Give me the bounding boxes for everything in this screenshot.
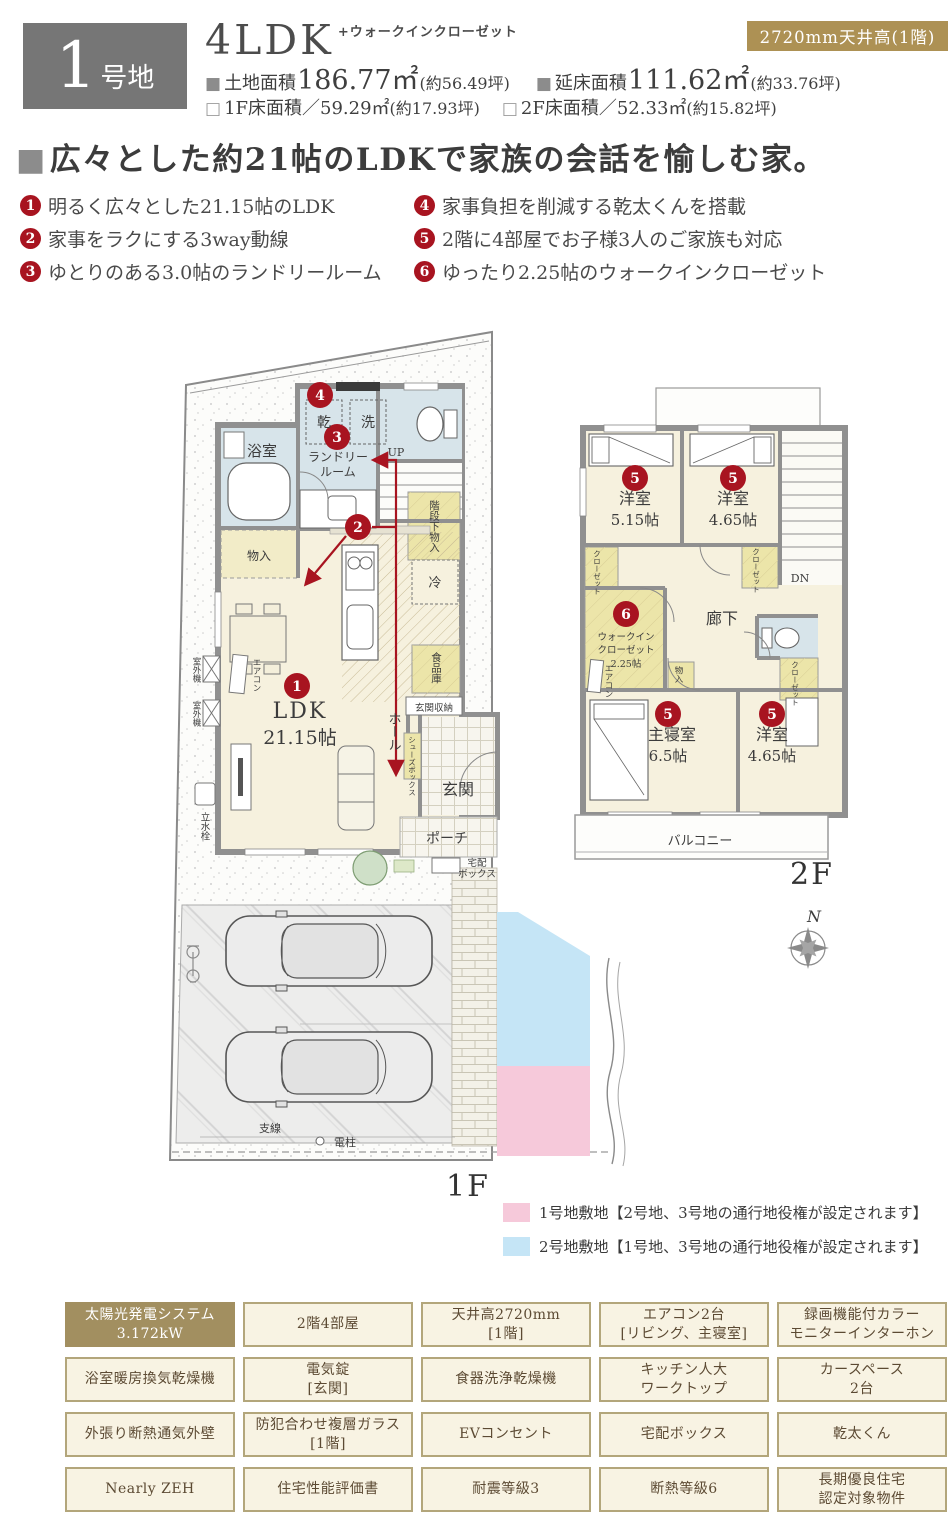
f1-area-value: 59.29㎡	[320, 94, 390, 120]
room2-size: 4.65帖	[709, 511, 757, 529]
entry-storage-label: 玄関収納	[415, 702, 453, 714]
laundry-label-2: ルーム	[320, 465, 356, 479]
svg-text:5: 5	[630, 471, 640, 487]
total-area-label: 延床面積	[555, 69, 627, 95]
spec-cell-carspace: カースペース2台	[777, 1357, 947, 1402]
feature-item-3: 3 ゆとりのある3.0帖のランドリールーム	[20, 255, 414, 288]
headline-square-marker: ■	[16, 142, 47, 178]
easement-areas	[497, 912, 625, 1166]
master-label: 主寝室	[648, 725, 696, 744]
legend-item-blue: 2号地敷地【1号地、3号地の通行地役権が設定されます】	[503, 1236, 928, 1256]
feature-text: ゆとりのある3.0帖のランドリールーム	[48, 258, 382, 285]
storage-label: 物入	[247, 549, 271, 563]
feature-item-5: 5 2階に4部屋でお子様3人のご家族も対応	[414, 222, 826, 255]
open-square-marker: □	[205, 99, 221, 119]
feature-number-badge: 5	[414, 228, 435, 249]
flyer-page: 1 2 3 4 浴室 乾 洗 ランドリー ルーム UP 階段下物入 物入 冷	[0, 0, 950, 1516]
f2-area-tsubo: (約15.82坪)	[686, 95, 776, 119]
square-marker: ■	[536, 74, 552, 94]
dryer-label: 乾	[317, 415, 331, 431]
pink-swatch	[503, 1203, 530, 1222]
toilet-1f	[417, 407, 457, 441]
spec-cell-4rooms: 2階4部屋	[243, 1302, 413, 1347]
floor-label-2f: 2F	[790, 857, 834, 892]
svg-text:3: 3	[332, 430, 342, 446]
ceiling-height-badge: 2720mm天井高(1階)	[747, 21, 948, 51]
wic-label-2: クローゼット	[597, 644, 654, 656]
f1-area-label: 1F床面積／	[224, 94, 320, 120]
sofa	[338, 746, 374, 830]
legend-text: 2号地敷地【1号地、3号地の通行地役権が設定されます】	[539, 1236, 928, 1257]
svg-text:5: 5	[728, 471, 738, 487]
bathtub	[228, 463, 290, 520]
room3-size: 4.65帖	[748, 747, 796, 765]
blue-swatch	[503, 1237, 530, 1256]
delivery-label-1: 宅配	[467, 857, 487, 869]
road-edge-wavy2	[618, 962, 625, 1166]
feature-number-badge: 3	[20, 261, 41, 282]
spec-cell-long-term-housing: 長期優良住宅認定対象物件	[777, 1467, 947, 1512]
feature-number-badge: 1	[20, 195, 41, 216]
pantry-label: 食品庫	[430, 651, 442, 684]
tile-walkway	[452, 868, 497, 1146]
easement-legend: 1号地敷地【2号地、3号地の通行地役権が設定されます】 2号地敷地【1号地、3号…	[503, 1202, 928, 1270]
spec-cell-ev-outlet: EVコンセント	[421, 1412, 591, 1457]
up-label: UP	[388, 446, 405, 459]
feature-text: ゆったり2.25帖のウォークインクローゼット	[442, 258, 826, 285]
feature-text: 2階に4部屋でお子様3人のご家族も対応	[442, 225, 782, 252]
window	[698, 425, 750, 432]
porch-label: ポーチ	[426, 831, 468, 847]
svg-text:5: 5	[767, 707, 777, 723]
room3-label: 洋室	[756, 725, 788, 744]
feature-text: 家事負担を削減する乾太くんを搭載	[442, 192, 746, 219]
toilet-2f	[762, 628, 799, 648]
feature-text: 家事をラクにする3way動線	[48, 225, 289, 252]
closet-b-label: クローゼット	[751, 548, 760, 593]
spec-cell-performance-report: 住宅性能評価書	[243, 1467, 413, 1512]
house-1f: 1 2 3 4 浴室 乾 洗 ランドリー ルーム UP 階段下物入 物入 冷	[191, 382, 497, 885]
window	[245, 849, 305, 855]
aircon-label-1f: エアコン	[251, 658, 261, 692]
tree	[353, 851, 387, 885]
total-area-tsubo: (約33.76坪)	[750, 70, 840, 94]
f1-area-tsubo: (約17.93坪)	[390, 95, 480, 119]
total-area-value: 111.62㎡	[628, 58, 749, 97]
support-wire-label: 支線	[259, 1121, 281, 1135]
window	[580, 468, 586, 516]
closet-c-label: クローゼット	[790, 661, 799, 706]
kitchen-island	[342, 545, 378, 660]
spec-cell-counter: キッチン人大ワークトップ	[599, 1357, 769, 1402]
feature-list: 1 明るく広々とした21.15帖のLDK 2 家事をラクにする3way動線 3 …	[20, 189, 826, 288]
spec-cell-interphone: 録画機能付カラーモニターインターホン	[777, 1302, 947, 1347]
area-line-1: ■ 土地面積 186.77㎡ (約56.49坪) ■ 延床面積 111.62㎡ …	[205, 58, 841, 97]
dn-label: DN	[791, 572, 810, 585]
layout-type-row: 4LDK+ウォークインクローゼット	[205, 16, 514, 64]
feature-text: 明るく広々とした21.15帖のLDK	[48, 192, 334, 219]
legend-item-pink: 1号地敷地【2号地、3号地の通行地役権が設定されます】	[503, 1202, 928, 1222]
road-edge-wavy	[607, 958, 615, 1164]
layout-note: +ウォークインクローゼット	[338, 25, 518, 40]
page-title: ■広々とした約21帖のLDKで家族の会話を愉しむ家。	[16, 134, 826, 179]
svg-text:1: 1	[292, 679, 302, 695]
window	[215, 592, 221, 647]
house-2f: 5 5 5 5 6 洋室 5.15帖 洋室 4.65帖 クローゼット クローゼッ…	[575, 388, 845, 892]
feature-number-badge: 2	[20, 228, 41, 249]
area-line-2: □ 1F床面積／ 59.29㎡ (約17.93坪) □ 2F床面積／ 52.33…	[205, 94, 777, 120]
svg-text:2: 2	[353, 520, 363, 536]
spec-cell-delivery-box: 宅配ボックス	[599, 1412, 769, 1457]
tv-board	[231, 744, 251, 810]
plot1-easement-pink	[497, 1066, 590, 1156]
feature-number-badge: 4	[414, 195, 435, 216]
hall-label: ホール	[386, 712, 401, 751]
spec-cell-electric-lock: 電気錠[玄関]	[243, 1357, 413, 1402]
delivery-label-2: ボックス	[458, 869, 496, 880]
svg-text:5: 5	[663, 707, 673, 723]
car-top	[226, 911, 432, 991]
svg-text:6: 6	[621, 607, 631, 623]
entrance-label: 玄関	[442, 780, 474, 799]
legend-text: 1号地敷地【2号地、3号地の通行地役権が設定されます】	[539, 1202, 928, 1223]
f2-area-value: 52.33㎡	[617, 94, 687, 120]
window	[604, 425, 656, 432]
utility-pole-icon	[316, 1137, 324, 1145]
spec-cell-insulation-wall: 外張り断熱通気外壁	[65, 1412, 235, 1457]
faucet-label: 立水栓	[199, 811, 211, 841]
open-square-marker: □	[502, 99, 518, 119]
spec-cell-dishwasher: 食器洗浄乾燥機	[421, 1357, 591, 1402]
delivery-box	[432, 858, 460, 873]
aircon-label-2f: エアコン	[603, 664, 613, 698]
faucet-box	[195, 783, 215, 805]
svg-text:4: 4	[315, 388, 325, 404]
feature-item-1: 1 明るく広々とした21.15帖のLDK	[20, 189, 414, 222]
feature-item-6: 6 ゆったり2.25帖のウォークインクローゼット	[414, 255, 826, 288]
f2-area-label: 2F床面積／	[521, 94, 617, 120]
closet-a-label: クローゼット	[592, 550, 601, 595]
square-marker: ■	[205, 74, 221, 94]
bath-label: 浴室	[247, 442, 277, 460]
room1-size: 5.15帖	[611, 511, 659, 529]
feature-item-4: 4 家事負担を削減する乾太くんを搭載	[414, 189, 826, 222]
entrance-floor	[422, 717, 495, 815]
spec-cell-bath-dryer: 浴室暖房換気乾燥機	[65, 1357, 235, 1402]
spec-cell-ceiling: 天井高2720mm[1階]	[421, 1302, 591, 1347]
ldk-size: 21.15帖	[263, 727, 336, 749]
room1-label: 洋室	[619, 489, 651, 508]
bush	[394, 860, 414, 872]
spec-cell-kanta-kun: 乾太くん	[777, 1412, 947, 1457]
plot-number-badge: 1号地	[23, 23, 187, 109]
roof-outline	[656, 388, 820, 428]
bed-room2	[690, 434, 774, 466]
compass-icon: N	[787, 907, 829, 969]
laundry-label-1: ランドリー	[308, 450, 368, 464]
corridor-label: 廊下	[706, 609, 738, 628]
shoebox-label: シューズボックス	[407, 736, 416, 796]
ldk-label: LDK	[273, 699, 328, 724]
land-area-label: 土地面積	[224, 69, 296, 95]
land-area-tsubo: (約56.49坪)	[420, 70, 510, 94]
utility-pole-label: 電柱	[334, 1135, 356, 1149]
under-stairs-label: 階段下物入	[428, 500, 440, 553]
feature-item-2: 2 家事をラクにする3way動線	[20, 222, 414, 255]
site-plan-1f: 1 2 3 4 浴室 乾 洗 ランドリー ルーム UP 階段下物入 物入 冷	[170, 332, 625, 1204]
plot-suffix: 号地	[100, 56, 154, 95]
spec-cell-seismic-grade: 耐震等級3	[421, 1467, 591, 1512]
spec-cell-insulation-grade: 断熱等級6	[599, 1467, 769, 1512]
spec-grid: 太陽光発電システム3.172kW 2階4部屋 天井高2720mm[1階] エアコ…	[65, 1302, 947, 1512]
stairs-dn	[780, 431, 842, 585]
master-size: 6.5帖	[649, 747, 688, 765]
washer-label: 洗	[361, 415, 375, 431]
bed-room1	[589, 434, 673, 466]
fridge-label: 冷	[428, 576, 441, 591]
wic-size: 2.25帖	[611, 658, 642, 670]
compass-n-label: N	[806, 907, 822, 926]
outdoor-unit-label-2: 室外機	[191, 700, 201, 727]
aircon-unit-2f	[587, 659, 603, 692]
wic-label-1: ウォークイン	[597, 632, 654, 643]
outdoor-unit-label-1: 室外機	[191, 656, 201, 683]
feature-number-badge: 6	[414, 261, 435, 282]
balcony-label: バルコニー	[668, 834, 733, 849]
plot2-easement-blue	[497, 912, 590, 1066]
car-bottom	[226, 1027, 432, 1107]
window-dark	[336, 382, 380, 391]
plot-number: 1	[56, 23, 97, 109]
room2-label: 洋室	[717, 489, 749, 508]
spec-cell-solar: 太陽光発電システム3.172kW	[65, 1302, 235, 1347]
floor-label-1f: 1F	[446, 1169, 490, 1204]
spec-cell-security-glass: 防犯合わせ複層ガラス[1階]	[243, 1412, 413, 1457]
land-area-value: 186.77㎡	[297, 58, 418, 97]
spec-cell-aircon: エアコン2台[リビング、主寝室]	[599, 1302, 769, 1347]
spec-cell-nearly-zeh: Nearly ZEH	[65, 1467, 235, 1512]
bed-master	[590, 700, 648, 800]
layout-type: 4LDK	[205, 16, 334, 64]
storage-2f-label: 物入	[673, 665, 683, 683]
